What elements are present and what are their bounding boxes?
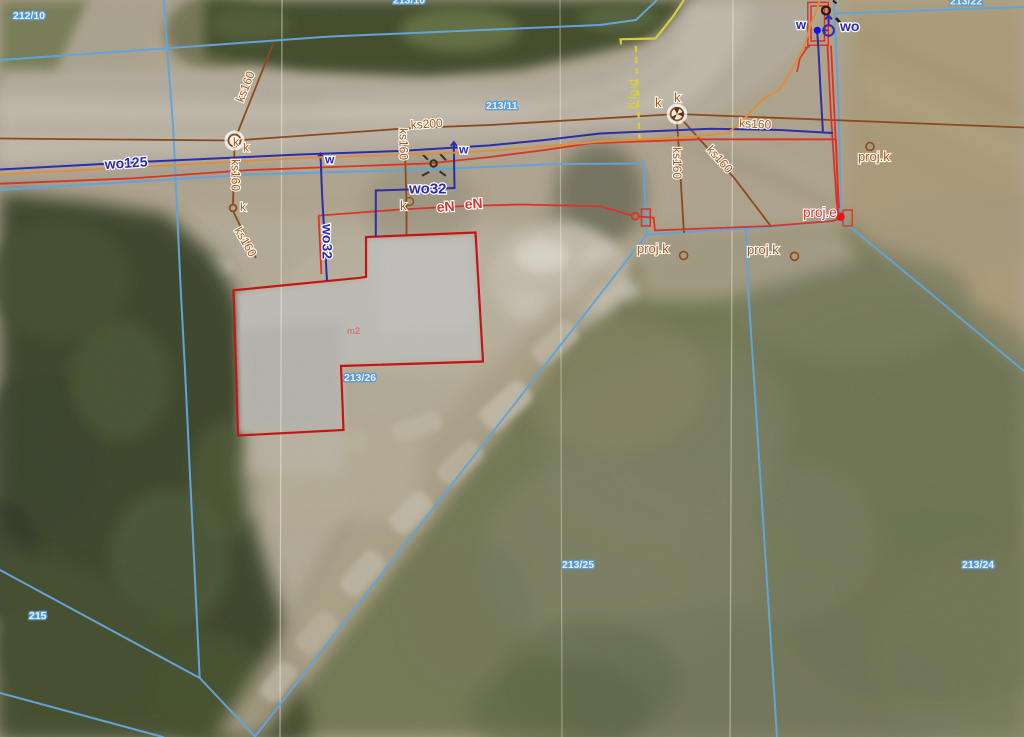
- svg-text:ks160: ks160: [229, 159, 243, 191]
- svg-text:k: k: [400, 198, 407, 213]
- svg-text:eN: eN: [436, 198, 455, 215]
- svg-text:213/25: 213/25: [562, 559, 594, 571]
- svg-text:213/10: 213/10: [393, 0, 425, 7]
- svg-text:k: k: [240, 200, 247, 214]
- svg-text:wo32: wo32: [408, 181, 447, 198]
- svg-text:ks200: ks200: [410, 116, 443, 132]
- svg-text:wo: wo: [839, 18, 859, 34]
- svg-text:proj.k: proj.k: [747, 242, 779, 257]
- svg-text:w: w: [458, 143, 469, 157]
- svg-text:212/10: 212/10: [13, 10, 45, 22]
- svg-text:m2: m2: [347, 326, 360, 337]
- svg-text:213/22: 213/22: [950, 0, 982, 8]
- svg-text:215: 215: [29, 610, 47, 622]
- svg-text:eN: eN: [464, 195, 483, 212]
- svg-text:213/11: 213/11: [486, 100, 518, 112]
- svg-text:k: k: [674, 90, 681, 105]
- svg-text:213/24: 213/24: [962, 559, 994, 571]
- svg-text:wo32: wo32: [320, 223, 336, 259]
- svg-text:proj.k: proj.k: [637, 241, 669, 256]
- svg-text:w: w: [795, 17, 807, 32]
- svg-text:k: k: [655, 95, 662, 110]
- svg-text:wo125: wo125: [103, 153, 148, 172]
- svg-text:proj.e: proj.e: [803, 205, 837, 220]
- svg-text:k: k: [243, 141, 250, 155]
- svg-text:proj.g: proj.g: [628, 79, 642, 109]
- svg-text:ks160: ks160: [739, 116, 772, 132]
- svg-text:w: w: [324, 153, 335, 167]
- svg-text:ks160: ks160: [670, 147, 684, 179]
- svg-text:ks160: ks160: [397, 128, 411, 160]
- svg-text:proj.k: proj.k: [858, 149, 890, 164]
- svg-text:k: k: [233, 135, 240, 149]
- svg-text:213/26: 213/26: [344, 372, 376, 384]
